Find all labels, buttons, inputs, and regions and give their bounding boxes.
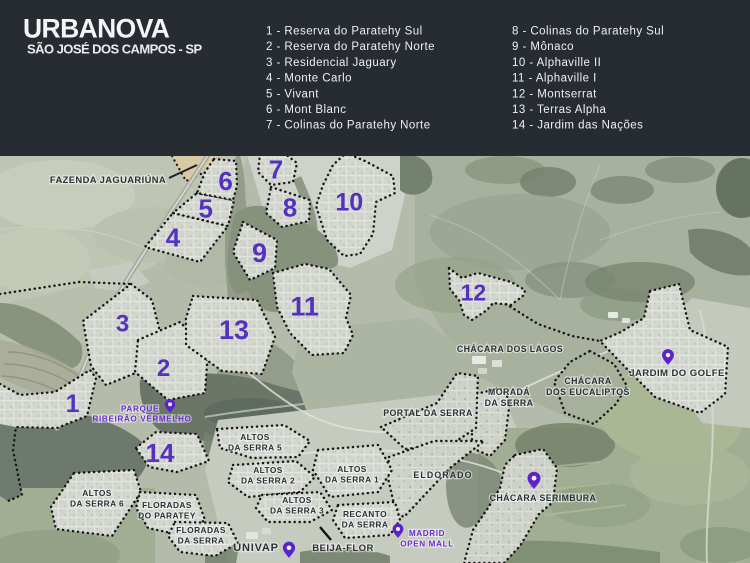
svg-text:CHÁCARA DOS LAGOS: CHÁCARA DOS LAGOS	[457, 344, 563, 354]
svg-text:9 - Mônaco: 9 - Mônaco	[512, 41, 574, 53]
svg-text:10: 10	[335, 189, 363, 217]
svg-text:14 - Jardim das Nações: 14 - Jardim das Nações	[512, 120, 643, 132]
svg-text:4 - Monte Carlo: 4 - Monte Carlo	[266, 73, 352, 85]
svg-text:3: 3	[116, 311, 129, 338]
svg-text:4: 4	[166, 223, 181, 253]
svg-text:FLORADASDO PARATEY: FLORADASDO PARATEY	[138, 500, 196, 521]
svg-text:2 - Reserva do Paratehy Norte: 2 - Reserva do Paratehy Norte	[266, 41, 435, 53]
svg-text:3 - Residencial Jaguary: 3 - Residencial Jaguary	[266, 57, 397, 69]
svg-text:UNIVAP: UNIVAP	[233, 542, 279, 554]
svg-text:7: 7	[269, 155, 283, 185]
svg-text:BEIJA-FLOR: BEIJA-FLOR	[312, 543, 374, 554]
svg-text:6: 6	[218, 166, 232, 196]
svg-text:MORADÁDA SERRA: MORADÁDA SERRA	[485, 387, 534, 408]
svg-text:8 - Colinas do Paratehy Sul: 8 - Colinas do Paratehy Sul	[512, 26, 664, 38]
svg-text:SÃO JOSÉ DOS CAMPOS - SP: SÃO JOSÉ DOS CAMPOS - SP	[27, 42, 202, 57]
svg-text:14: 14	[146, 438, 175, 468]
svg-text:RECANTODA SERRA: RECANTODA SERRA	[342, 509, 389, 530]
svg-text:5 - Vivant: 5 - Vivant	[266, 88, 319, 100]
svg-text:1: 1	[66, 390, 80, 418]
svg-text:12: 12	[461, 280, 487, 306]
svg-text:2: 2	[157, 355, 170, 382]
svg-text:11 - Alphaville I: 11 - Alphaville I	[512, 73, 597, 85]
svg-text:7 - Colinas do Paratehy Norte: 7 - Colinas do Paratehy Norte	[266, 120, 431, 132]
svg-text:FAZENDA JAGUARIÚNA: FAZENDA JAGUARIÚNA	[50, 174, 166, 185]
svg-text:CHÁCARA SERIMBURA: CHÁCARA SERIMBURA	[490, 493, 597, 503]
svg-text:9: 9	[252, 238, 267, 268]
svg-text:10 - Alphaville II: 10 - Alphaville II	[512, 57, 601, 69]
svg-text:5: 5	[198, 194, 212, 224]
svg-text:12 - Montserrat: 12 - Montserrat	[512, 88, 597, 100]
svg-text:URBANOVA: URBANOVA	[23, 14, 170, 44]
svg-text:ELDORADO: ELDORADO	[413, 470, 472, 480]
svg-text:PORTAL DA SERRA: PORTAL DA SERRA	[383, 408, 473, 418]
svg-text:13: 13	[219, 315, 249, 345]
svg-text:13 - Terras Alpha: 13 - Terras Alpha	[512, 104, 607, 116]
svg-text:JARDIM DO GOLFE: JARDIM DO GOLFE	[629, 368, 725, 379]
svg-text:1 - Reserva do Paratehy Sul: 1 - Reserva do Paratehy Sul	[266, 26, 423, 38]
svg-text:6 - Mont Blanc: 6 - Mont Blanc	[266, 104, 346, 116]
svg-text:FLORADASDA SERRA: FLORADASDA SERRA	[176, 525, 226, 546]
svg-text:8: 8	[283, 193, 297, 223]
svg-text:11: 11	[290, 292, 319, 322]
